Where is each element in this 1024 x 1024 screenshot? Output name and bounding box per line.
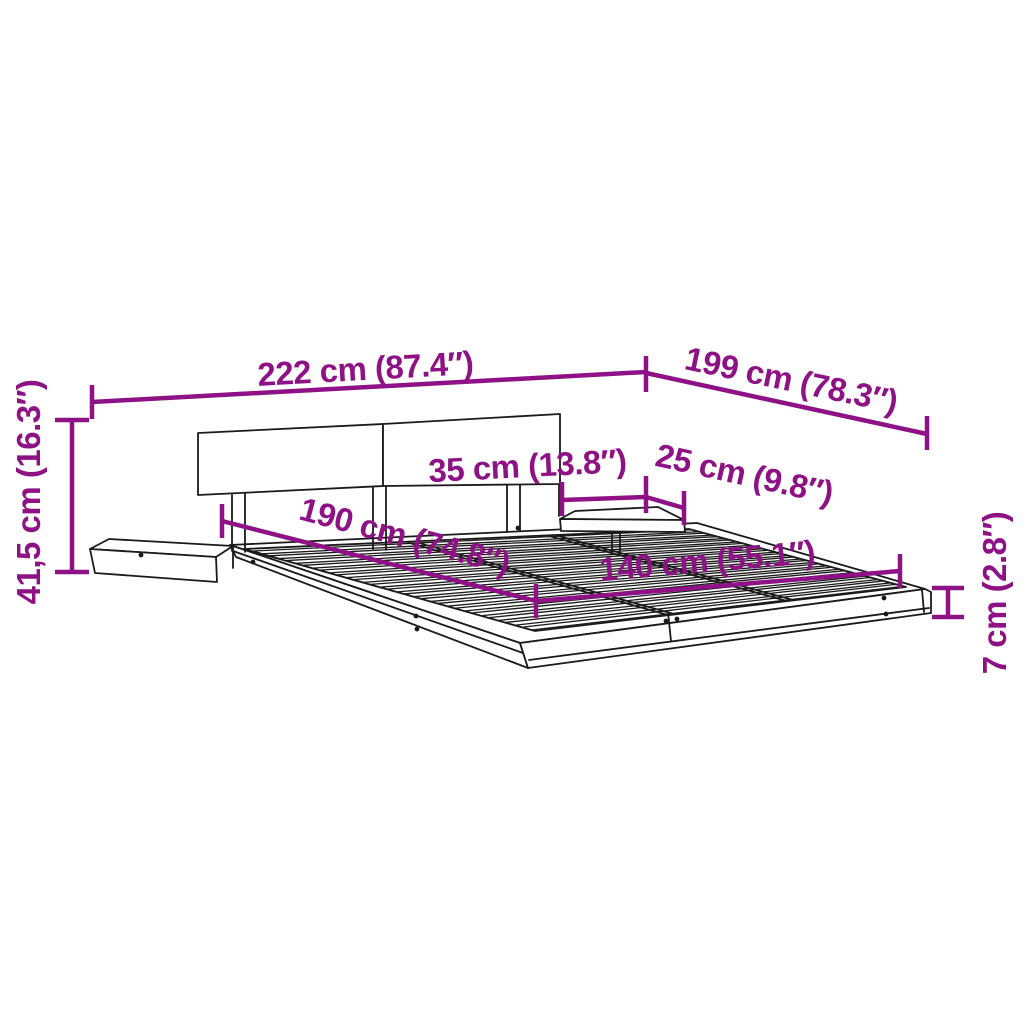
dimension-label-frame-height: 7 cm (2.8″) <box>976 512 1013 675</box>
left-bedside-shelf <box>90 539 233 582</box>
dimension-label-shelf-depth: 25 cm (9.8″) <box>652 436 836 511</box>
dimension-line <box>646 497 684 508</box>
dimension-label-total-width: 222 cm (87.4″) <box>256 344 474 393</box>
diagram-canvas: 222 cm (87.4″) 199 cm (78.3″) 41,5 cm (1… <box>0 0 1024 1024</box>
dimension-total-depth: 199 cm (78.3″) <box>646 340 927 450</box>
dimension-frame-height: 7 cm (2.8″) <box>932 512 1013 675</box>
dimension-total-width: 222 cm (87.4″) <box>92 344 646 419</box>
dimension-shelf-depth: 25 cm (9.8″) <box>646 436 837 525</box>
headboard-panel-left <box>198 424 383 495</box>
dimension-label-headboard-height: 41,5 cm (16.3″) <box>10 380 47 605</box>
dimension-line <box>562 497 646 500</box>
bed-dimension-diagram: 222 cm (87.4″) 199 cm (78.3″) 41,5 cm (1… <box>0 0 1024 1024</box>
dimension-shelf-width: 35 cm (13.8″) <box>427 442 646 516</box>
dimension-label-total-depth: 199 cm (78.3″) <box>682 340 901 420</box>
dimension-headboard-height: 41,5 cm (16.3″) <box>10 380 89 605</box>
